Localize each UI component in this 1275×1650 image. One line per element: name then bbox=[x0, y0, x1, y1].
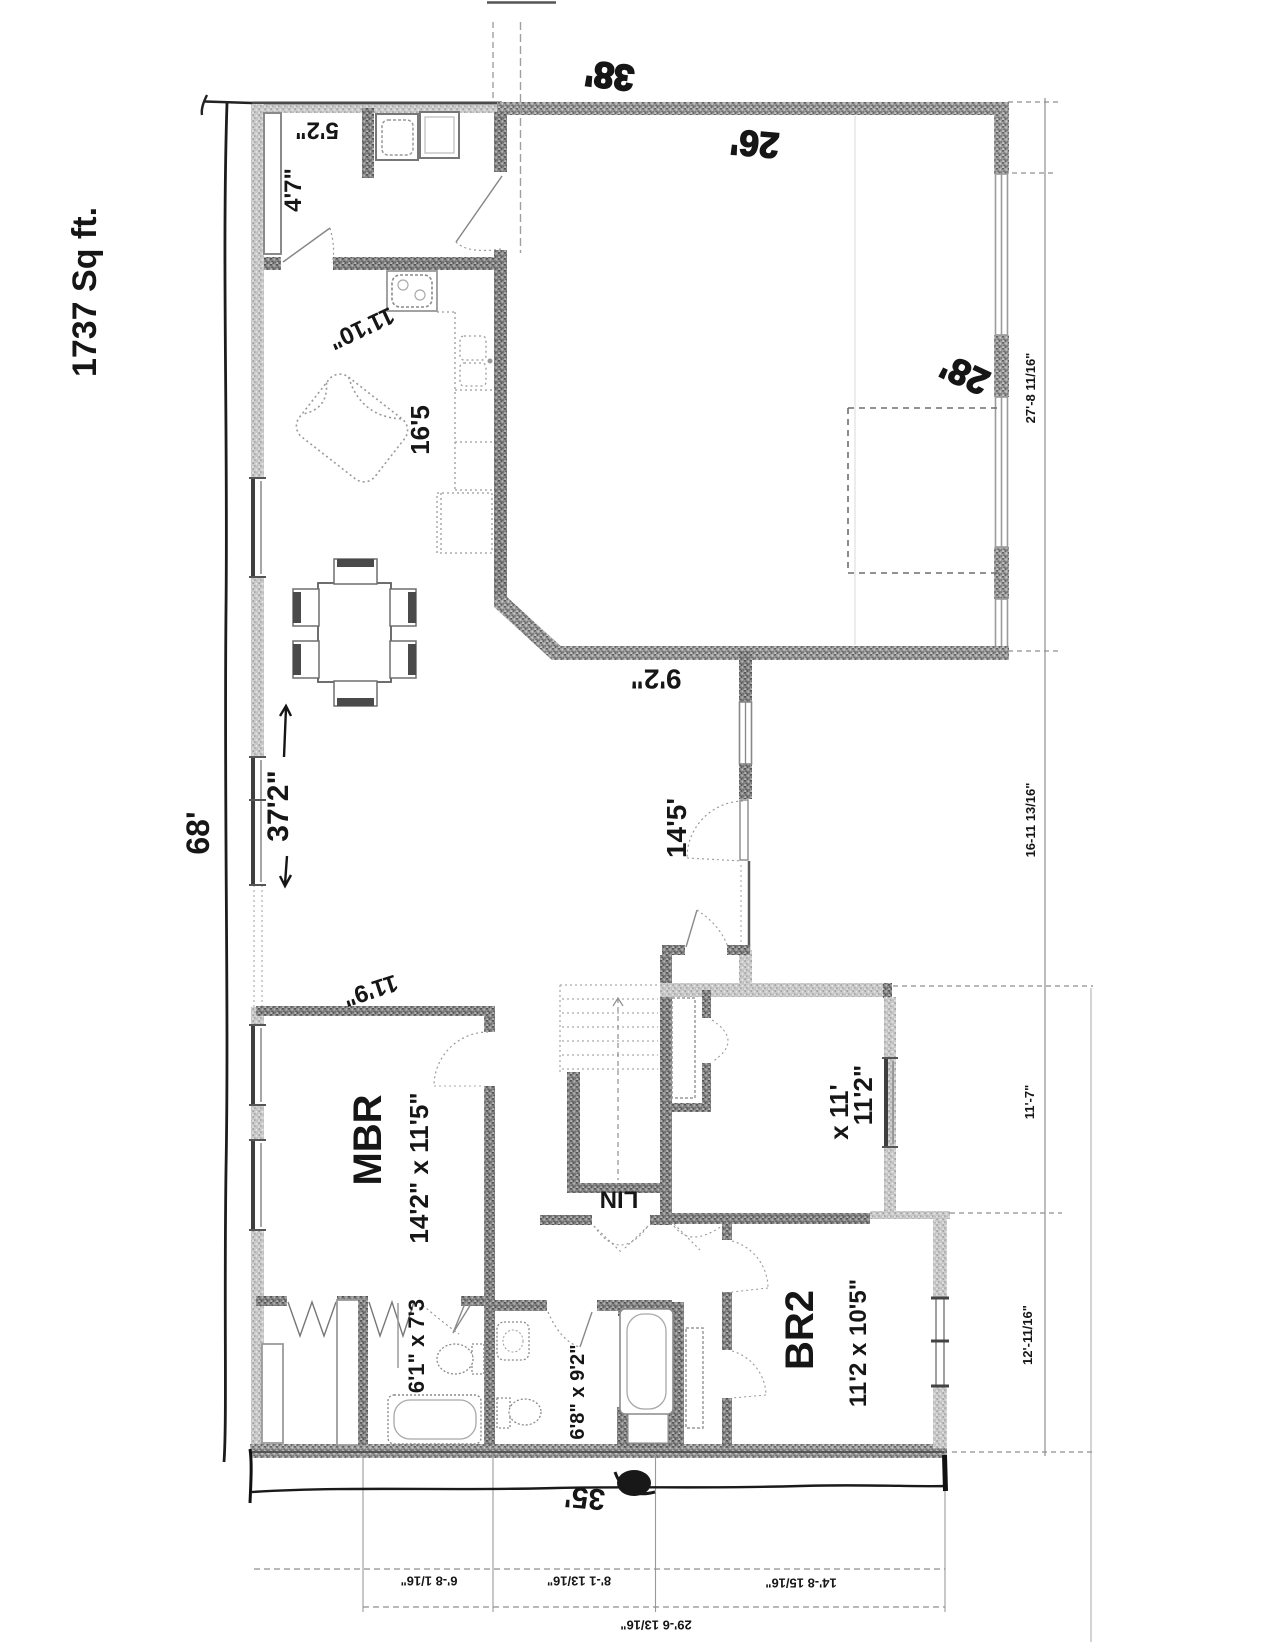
svg-text:16'5: 16'5 bbox=[405, 405, 435, 455]
svg-text:BR2: BR2 bbox=[778, 1290, 822, 1370]
svg-text:x 11': x 11' bbox=[824, 1084, 854, 1139]
svg-text:9'2": 9'2" bbox=[630, 664, 681, 695]
svg-text:MBR: MBR bbox=[346, 1094, 390, 1185]
svg-text:12'-11/16": 12'-11/16" bbox=[1020, 1305, 1035, 1365]
svg-text:37'2": 37'2" bbox=[262, 770, 295, 841]
svg-text:11'-7": 11'-7" bbox=[1022, 1085, 1037, 1120]
svg-text:LIN: LIN bbox=[600, 1186, 639, 1213]
svg-text:14'5': 14'5' bbox=[661, 798, 692, 858]
svg-text:38': 38' bbox=[583, 53, 636, 100]
svg-text:6'-8 1/16": 6'-8 1/16" bbox=[401, 1574, 458, 1589]
svg-text:68': 68' bbox=[180, 811, 216, 854]
svg-text:8'-1 13/16": 8'-1 13/16" bbox=[547, 1574, 611, 1589]
svg-text:6'1" x 7'3: 6'1" x 7'3 bbox=[404, 1299, 429, 1393]
svg-text:5'2": 5'2" bbox=[295, 117, 339, 144]
svg-text:16-11 13/16": 16-11 13/16" bbox=[1023, 783, 1038, 858]
svg-text:35': 35' bbox=[563, 1479, 606, 1515]
svg-text:14'2" x 11'5": 14'2" x 11'5" bbox=[404, 1092, 434, 1243]
svg-text:27'-8 11/16": 27'-8 11/16" bbox=[1023, 353, 1038, 424]
svg-text:29'-6 13/16": 29'-6 13/16" bbox=[620, 1618, 691, 1633]
svg-text:26': 26' bbox=[729, 121, 781, 166]
svg-text:6'8" x 9'2": 6'8" x 9'2" bbox=[567, 1344, 589, 1439]
svg-text:4'7": 4'7" bbox=[280, 168, 307, 212]
svg-text:11'2 x 10'5": 11'2 x 10'5" bbox=[845, 1279, 872, 1407]
svg-text:1737 Sq ft.: 1737 Sq ft. bbox=[66, 207, 104, 377]
svg-text:14'-8 15/16": 14'-8 15/16" bbox=[765, 1576, 836, 1591]
